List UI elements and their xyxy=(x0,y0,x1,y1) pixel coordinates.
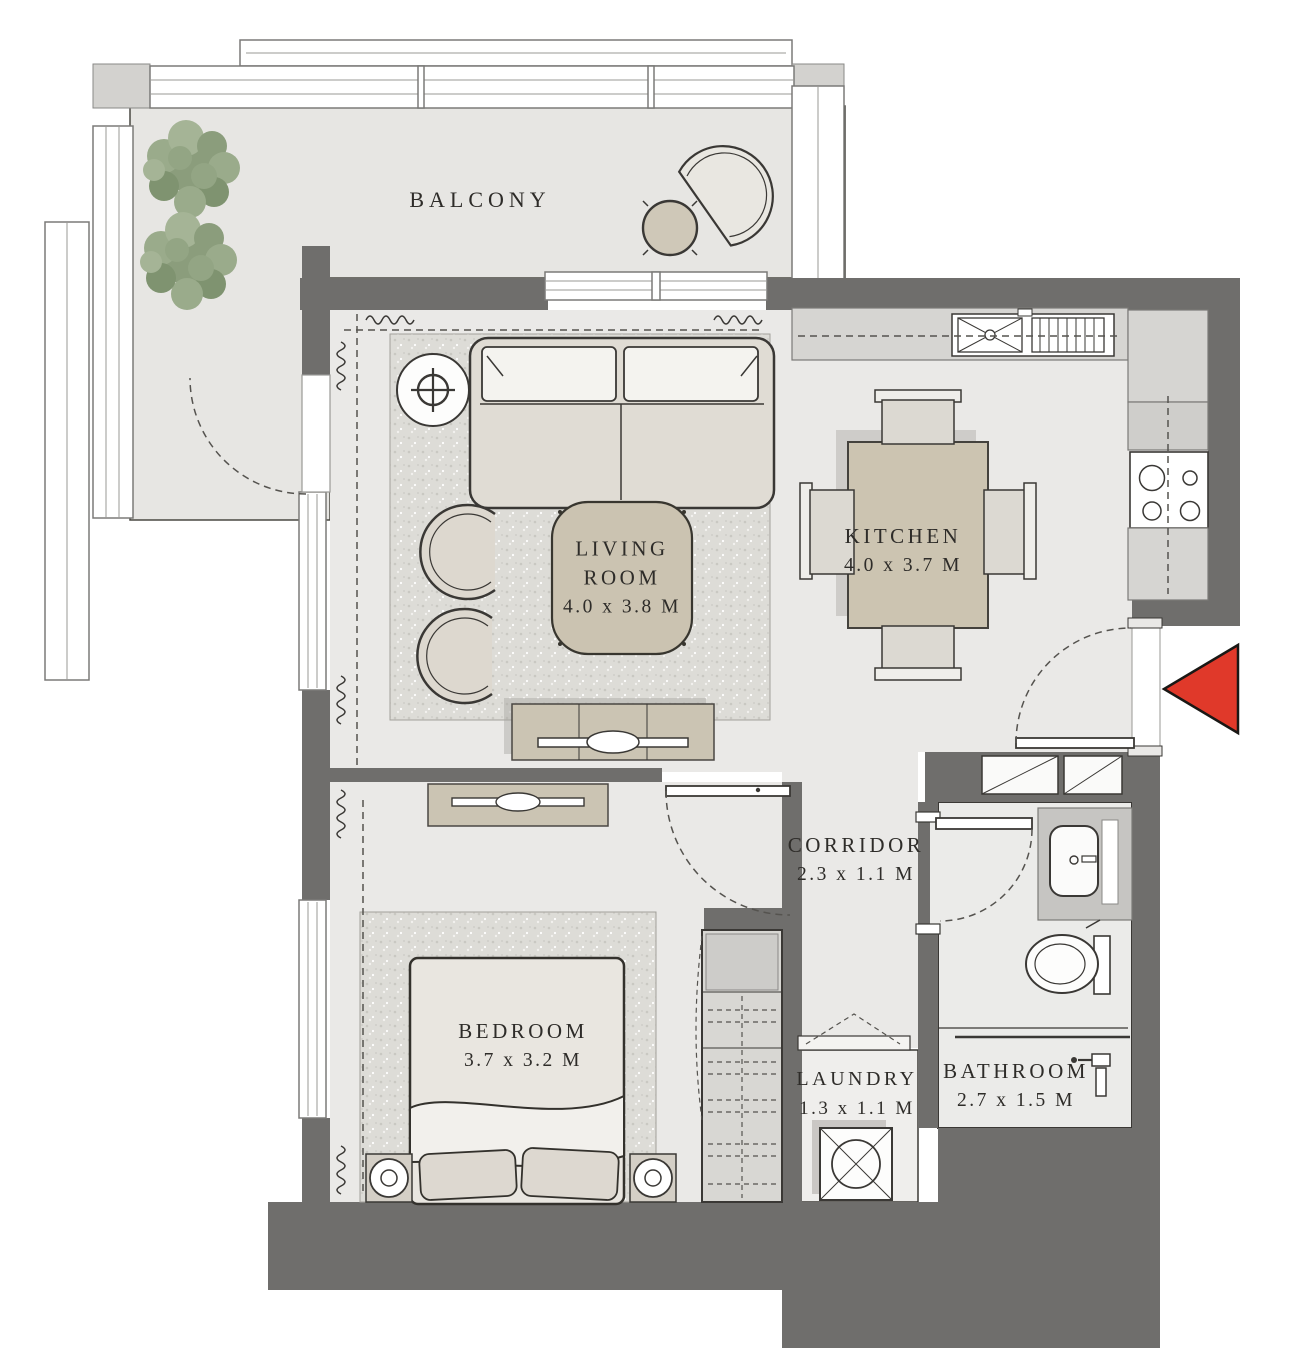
room-name: BEDROOM xyxy=(458,1017,588,1046)
washing-machine-icon xyxy=(812,1120,892,1200)
wardrobe-icon xyxy=(696,930,782,1202)
bed-icon xyxy=(410,958,624,1204)
room-dimensions: 4.0 x 3.8 M xyxy=(563,593,681,622)
kitchen-sink-icon xyxy=(952,309,1114,356)
room-name: KITCHEN xyxy=(844,522,962,551)
living-room-label: LIVING ROOM 4.0 x 3.8 M xyxy=(563,535,681,622)
tv-console-icon xyxy=(504,698,714,760)
vanity-sink-icon xyxy=(1038,808,1132,920)
closet-icon xyxy=(982,756,1122,794)
room-name: ROOM xyxy=(563,564,681,593)
dining-chair-icon xyxy=(875,390,961,444)
floor-plan: BALCONY LIVING ROOM 4.0 x 3.8 M KITCHEN … xyxy=(0,0,1312,1368)
dining-chair-icon xyxy=(875,626,961,680)
room-name: CORRIDOR xyxy=(788,831,925,860)
corridor-label: CORRIDOR 2.3 x 1.1 M xyxy=(788,831,925,889)
entry-arrow-icon xyxy=(1164,645,1238,733)
room-dimensions: 3.7 x 3.2 M xyxy=(458,1046,588,1075)
laundry-label: LAUNDRY 1.3 x 1.1 M xyxy=(796,1065,917,1123)
stove-icon xyxy=(1130,452,1208,528)
dining-chair-icon xyxy=(984,483,1036,579)
room-name: BALCONY xyxy=(409,187,550,213)
room-dimensions: 1.3 x 1.1 M xyxy=(796,1094,917,1123)
nightstand-icon xyxy=(366,1154,412,1202)
kitchen-label: KITCHEN 4.0 x 3.7 M xyxy=(844,522,962,580)
bathroom-label: BATHROOM 2.7 x 1.5 M xyxy=(943,1057,1089,1115)
bedroom-label: BEDROOM 3.7 x 3.2 M xyxy=(458,1017,588,1075)
room-name: BATHROOM xyxy=(943,1057,1089,1086)
room-name: LAUNDRY xyxy=(796,1065,917,1094)
floor-lamp-icon xyxy=(397,354,469,426)
nightstand-icon xyxy=(630,1154,676,1202)
room-name: LIVING xyxy=(563,535,681,564)
room-dimensions: 2.7 x 1.5 M xyxy=(943,1086,1089,1115)
balcony-table-icon xyxy=(643,201,697,255)
room-dimensions: 2.3 x 1.1 M xyxy=(788,860,925,889)
tall-cabinet xyxy=(1128,310,1208,402)
balcony-label: BALCONY xyxy=(409,187,550,213)
dresser-icon xyxy=(428,784,608,826)
sofa-icon xyxy=(470,338,774,508)
floor-plan-drawing xyxy=(0,0,1312,1368)
room-dimensions: 4.0 x 3.7 M xyxy=(844,551,962,580)
